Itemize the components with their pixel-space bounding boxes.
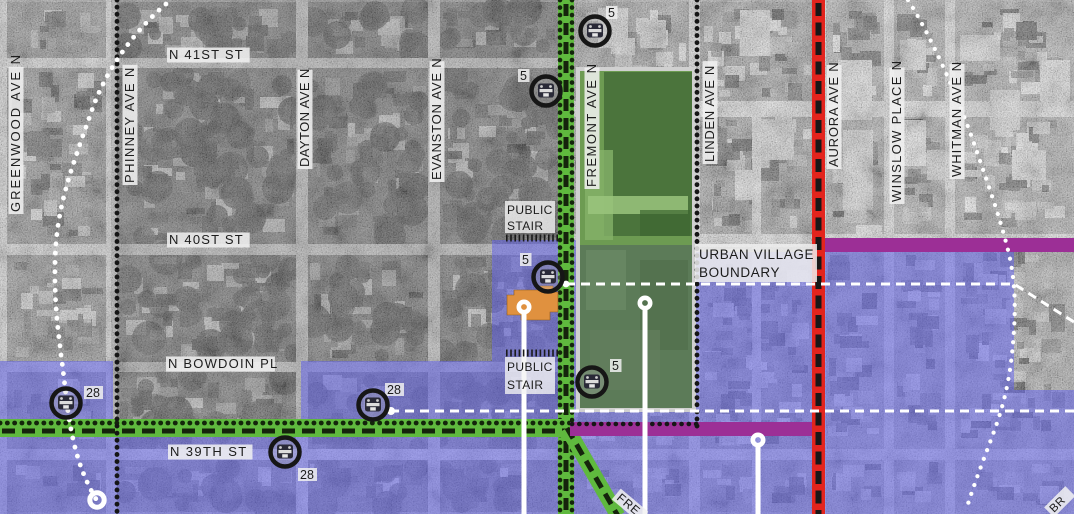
svg-text:GREENWOOD AVE N: GREENWOOD AVE N [8, 53, 23, 212]
svg-text:28: 28 [387, 383, 401, 397]
svg-text:5: 5 [608, 6, 615, 20]
svg-text:EVANSTON AVE N: EVANSTON AVE N [429, 58, 444, 180]
svg-text:5: 5 [612, 359, 619, 373]
svg-text:PUBLIC: PUBLIC [507, 360, 553, 374]
svg-text:PHINNEY AVE N: PHINNEY AVE N [122, 66, 137, 183]
svg-text:BOUNDARY: BOUNDARY [699, 265, 780, 280]
svg-text:LINDEN AVE N: LINDEN AVE N [702, 65, 717, 162]
svg-text:28: 28 [300, 468, 314, 482]
svg-text:DAYTON AVE N: DAYTON AVE N [297, 68, 312, 167]
svg-text:STAIR: STAIR [507, 378, 543, 392]
svg-text:FREMONT AVE N: FREMONT AVE N [584, 63, 599, 187]
svg-text:WINSLOW PLACE N: WINSLOW PLACE N [889, 60, 904, 202]
svg-text:WHITMAN AVE N: WHITMAN AVE N [949, 61, 964, 177]
svg-text:URBAN VILLAGE: URBAN VILLAGE [699, 247, 814, 262]
svg-text:N 41ST ST: N 41ST ST [169, 47, 244, 62]
svg-text:N 39TH ST: N 39TH ST [170, 444, 248, 459]
svg-text:28: 28 [86, 386, 100, 400]
svg-text:AURORA AVE N: AURORA AVE N [826, 62, 841, 167]
svg-text:STAIR: STAIR [507, 219, 543, 233]
svg-text:5: 5 [522, 253, 529, 267]
svg-text:N BOWDOIN PL: N BOWDOIN PL [168, 356, 278, 371]
svg-text:5: 5 [520, 69, 527, 83]
svg-text:N 40ST ST: N 40ST ST [169, 232, 244, 247]
svg-text:PUBLIC: PUBLIC [507, 203, 553, 217]
